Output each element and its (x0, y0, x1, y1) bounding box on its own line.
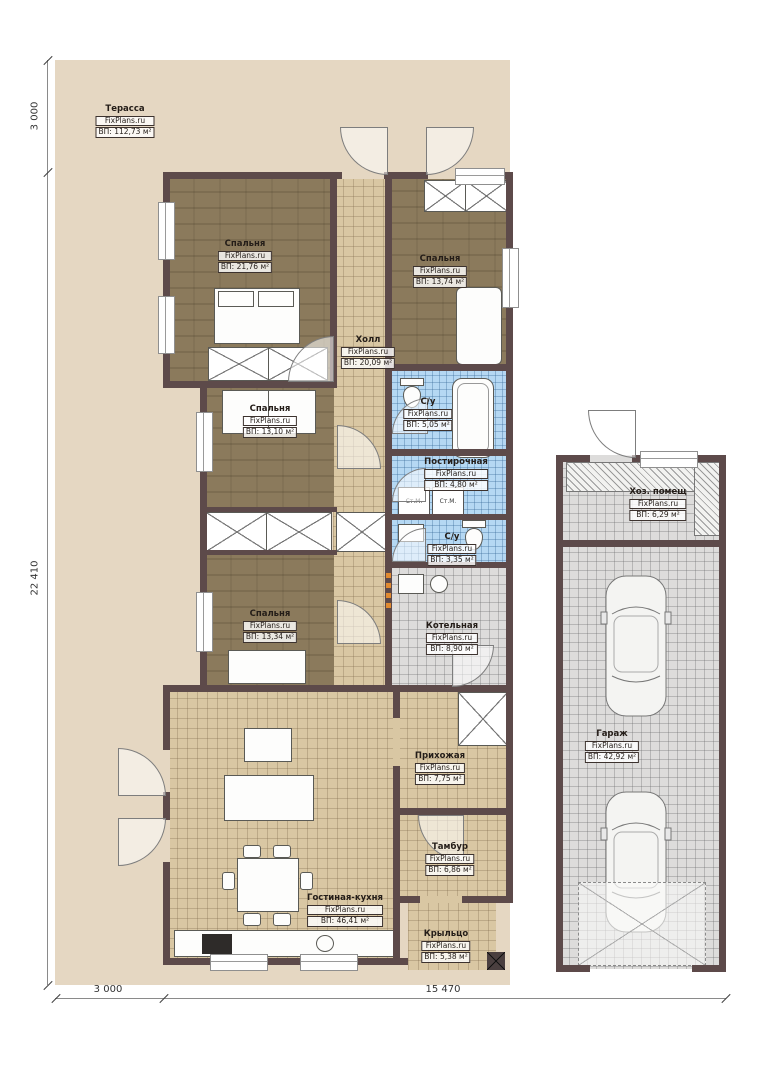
wardrobe (206, 512, 268, 552)
wall (692, 965, 726, 972)
window (502, 248, 519, 308)
dimension-tick (43, 56, 52, 65)
kitchen-sink-icon (316, 935, 334, 952)
room-area: ВП: 13,34 м² (243, 632, 297, 643)
room-brand: FixPlans.ru (341, 347, 395, 358)
sofa (224, 775, 314, 821)
room-label-living-kitchen: Гостиная-кухня FixPlans.ru ВП: 46,41 м² (307, 894, 383, 927)
room-name: Спальня (413, 255, 467, 265)
chair (300, 872, 313, 890)
bed (456, 287, 502, 365)
pillow (258, 291, 294, 307)
wall (556, 455, 563, 972)
chair (243, 913, 261, 926)
room-brand: FixPlans.ru (425, 854, 474, 865)
chair (222, 872, 235, 890)
car-icon (600, 572, 672, 720)
room-label-bedroom3: Спальня FixPlans.ru ВП: 13,10 м² (243, 405, 297, 438)
wall (719, 455, 726, 972)
wardrobe (208, 347, 270, 381)
room-area: ВП: 20,09 м² (341, 358, 395, 369)
room-brand: FixPlans.ru (243, 416, 297, 427)
room-label-bathroom2: С/у FixPlans.ru ВП: 3,35 м² (427, 533, 476, 566)
dimension-label: 15 470 (426, 984, 461, 995)
room-label-porch: Крыльцо FixPlans.ru ВП: 5,38 м² (421, 930, 470, 963)
room-name: Крыльцо (421, 930, 470, 940)
window (158, 296, 175, 354)
room-label-bedroom4: Спальня FixPlans.ru ВП: 13,34 м² (243, 610, 297, 643)
room-label-bathroom1: С/у FixPlans.ru ВП: 5,05 м² (403, 398, 452, 431)
room-area: ВП: 8,90 м² (426, 644, 478, 655)
room-label-boiler: Котельная FixPlans.ru ВП: 8,90 м² (426, 622, 478, 655)
room-label-entryhall: Прихожая FixPlans.ru ВП: 7,75 м² (415, 752, 465, 785)
room-label-vestibule: Тамбур FixPlans.ru ВП: 6,86 м² (425, 843, 474, 876)
window (640, 451, 698, 468)
room-brand: FixPlans.ru (424, 469, 488, 480)
room-brand: FixPlans.ru (629, 499, 686, 510)
window (196, 592, 213, 652)
toilet-tank-icon (462, 520, 486, 528)
room-name: Гараж (585, 730, 639, 740)
boiler-icon (398, 574, 424, 594)
room-area: ВП: 21,76 м² (218, 262, 272, 273)
door-opening (393, 718, 400, 766)
room-area: ВП: 3,35 м² (427, 555, 476, 566)
dimension-line-bottom (55, 998, 726, 999)
window (455, 168, 505, 185)
room-brand: FixPlans.ru (413, 266, 467, 277)
room-area: ВП: 112,73 м² (96, 127, 155, 138)
washer-label: Ст.М. (440, 498, 457, 505)
room-area: ВП: 13,10 м² (243, 427, 297, 438)
wall (556, 540, 726, 547)
washing-machine-icon: Ст.М. (432, 487, 464, 515)
room-area: ВП: 46,41 м² (307, 916, 383, 927)
toilet-tank-icon (400, 378, 424, 386)
room-name: Хоз. помещ (629, 488, 686, 498)
room-name: Терасса (96, 105, 155, 115)
wall (385, 172, 392, 692)
room-area: ВП: 13,74 м² (413, 277, 467, 288)
room-name: Постирочная (424, 458, 488, 468)
room-area: ВП: 5,05 м² (403, 420, 452, 431)
wall (556, 965, 590, 972)
dimension-label: 22 410 (30, 561, 41, 596)
room-label-bedroom2: Спальня FixPlans.ru ВП: 13,74 м² (413, 255, 467, 288)
chair (273, 845, 291, 858)
wall (204, 550, 337, 555)
wall (385, 514, 513, 520)
water-heater-icon (430, 575, 448, 593)
room-brand: FixPlans.ru (96, 116, 155, 127)
stove-icon (202, 934, 232, 954)
room-name: С/у (403, 398, 452, 408)
room-label-garage: Гараж FixPlans.ru ВП: 42,92 м² (585, 730, 639, 763)
room-area: ВП: 5,38 м² (421, 952, 470, 963)
wall (163, 958, 408, 965)
room-area: ВП: 6,29 м² (629, 510, 686, 521)
room-brand: FixPlans.ru (403, 409, 452, 420)
wall (204, 507, 337, 512)
shelving (694, 462, 720, 536)
dimension-tick (43, 168, 52, 177)
heater-dot (386, 583, 391, 588)
wardrobe (458, 692, 508, 746)
wall (385, 449, 513, 456)
room-brand: FixPlans.ru (426, 633, 478, 644)
window (196, 412, 213, 472)
wardrobe (336, 512, 388, 552)
room-name: Прихожая (415, 752, 465, 762)
dimension-label: 3 000 (94, 984, 123, 995)
room-name: Холл (341, 336, 395, 346)
room-label-utility: Хоз. помещ FixPlans.ru ВП: 6,29 м² (629, 488, 686, 521)
room-brand: FixPlans.ru (585, 741, 639, 752)
door-opening (420, 896, 462, 903)
bed (228, 650, 306, 684)
door-arc (588, 410, 636, 458)
floor-plan: Ст.М. Ст.М. (0, 0, 763, 1080)
wardrobe (266, 512, 332, 552)
room-brand: FixPlans.ru (427, 544, 476, 555)
room-brand: FixPlans.ru (415, 763, 465, 774)
wall (385, 364, 513, 371)
chair (273, 913, 291, 926)
heater-dot (386, 593, 391, 598)
room-brand: FixPlans.ru (243, 621, 297, 632)
coffee-table (244, 728, 292, 762)
garage-gate-zone (578, 882, 706, 966)
room-brand: FixPlans.ru (421, 941, 470, 952)
room-area: ВП: 4,80 м² (424, 480, 488, 491)
room-label-terrace: Терасса FixPlans.ru ВП: 112,73 м² (96, 105, 155, 138)
wall (163, 381, 335, 388)
room-name: Гостиная-кухня (307, 894, 383, 904)
room-area: ВП: 7,75 м² (415, 774, 465, 785)
heater-dot (386, 603, 391, 608)
room-area: ВП: 6,86 м² (425, 865, 474, 876)
dining-table (237, 858, 299, 912)
room-name: С/у (427, 533, 476, 543)
room-name: Тамбур (425, 843, 474, 853)
bathtub-icon (452, 378, 494, 458)
room-label-bedroom1: Спальня FixPlans.ru ВП: 21,76 м² (218, 240, 272, 273)
window (300, 954, 358, 971)
chair (243, 845, 261, 858)
pillow (218, 291, 254, 307)
wall (393, 808, 513, 815)
dimension-line-left (47, 60, 48, 985)
room-name: Спальня (218, 240, 272, 250)
heater-dot (386, 573, 391, 578)
room-area: ВП: 42,92 м² (585, 752, 639, 763)
room-name: Спальня (243, 405, 297, 415)
window (158, 202, 175, 260)
room-name: Котельная (426, 622, 478, 632)
porch-column (487, 952, 505, 970)
dimension-label: 3 000 (30, 102, 41, 131)
room-brand: FixPlans.ru (307, 905, 383, 916)
room-label-hall: Холл FixPlans.ru ВП: 20,09 м² (341, 336, 395, 369)
room-brand: FixPlans.ru (218, 251, 272, 262)
room-name: Спальня (243, 610, 297, 620)
room-label-laundry: Постирочная FixPlans.ru ВП: 4,80 м² (424, 458, 488, 491)
dimension-tick (43, 981, 52, 990)
window (210, 954, 268, 971)
